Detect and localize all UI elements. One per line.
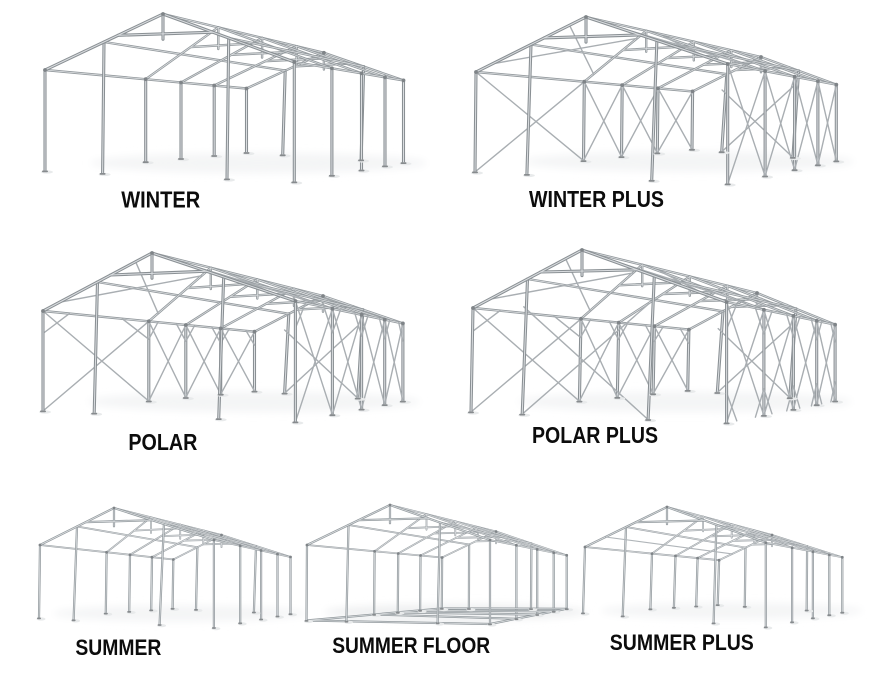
svg-text:WINTER: WINTER (121, 187, 200, 213)
svg-text:SUMMER: SUMMER (75, 635, 161, 660)
svg-text:POLAR: POLAR (128, 429, 197, 455)
svg-text:SUMMER PLUS: SUMMER PLUS (610, 630, 754, 655)
svg-text:POLAR PLUS: POLAR PLUS (532, 422, 658, 448)
svg-text:WINTER PLUS: WINTER PLUS (529, 186, 664, 212)
svg-text:SUMMER FLOOR: SUMMER FLOOR (332, 633, 490, 658)
